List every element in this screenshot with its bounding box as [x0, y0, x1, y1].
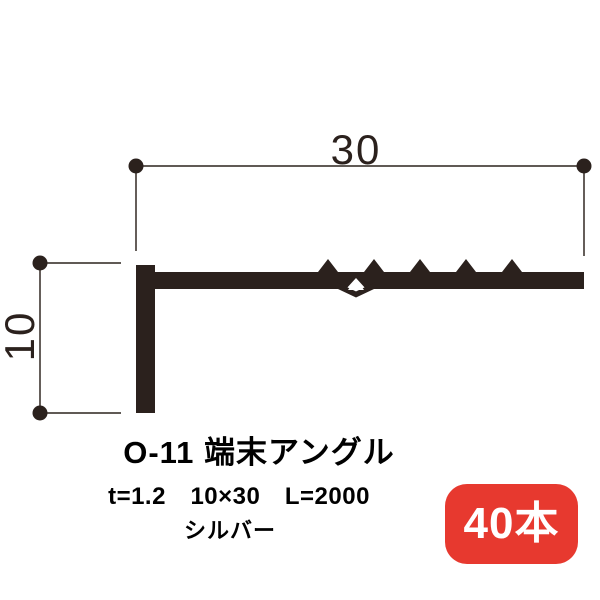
- dimension-end-dots: [33, 159, 592, 421]
- product-title: O-11 端末アングル: [123, 436, 395, 470]
- width-dimension: [136, 166, 584, 256]
- product-color-name: シルバー: [184, 519, 276, 543]
- quantity-badge: 40本: [445, 484, 578, 564]
- width-dimension-label: 30: [331, 129, 382, 171]
- product-image: 30 10 O-11 端末アングル t=1.2 10×30 L=2000 シルバ…: [0, 0, 600, 600]
- angle-profile-shape: [136, 259, 584, 413]
- product-specs: t=1.2 10×30 L=2000: [108, 484, 370, 510]
- height-dimension: [40, 263, 121, 413]
- height-dimension-label: 10: [0, 311, 41, 362]
- quantity-badge-label: 40本: [464, 502, 560, 546]
